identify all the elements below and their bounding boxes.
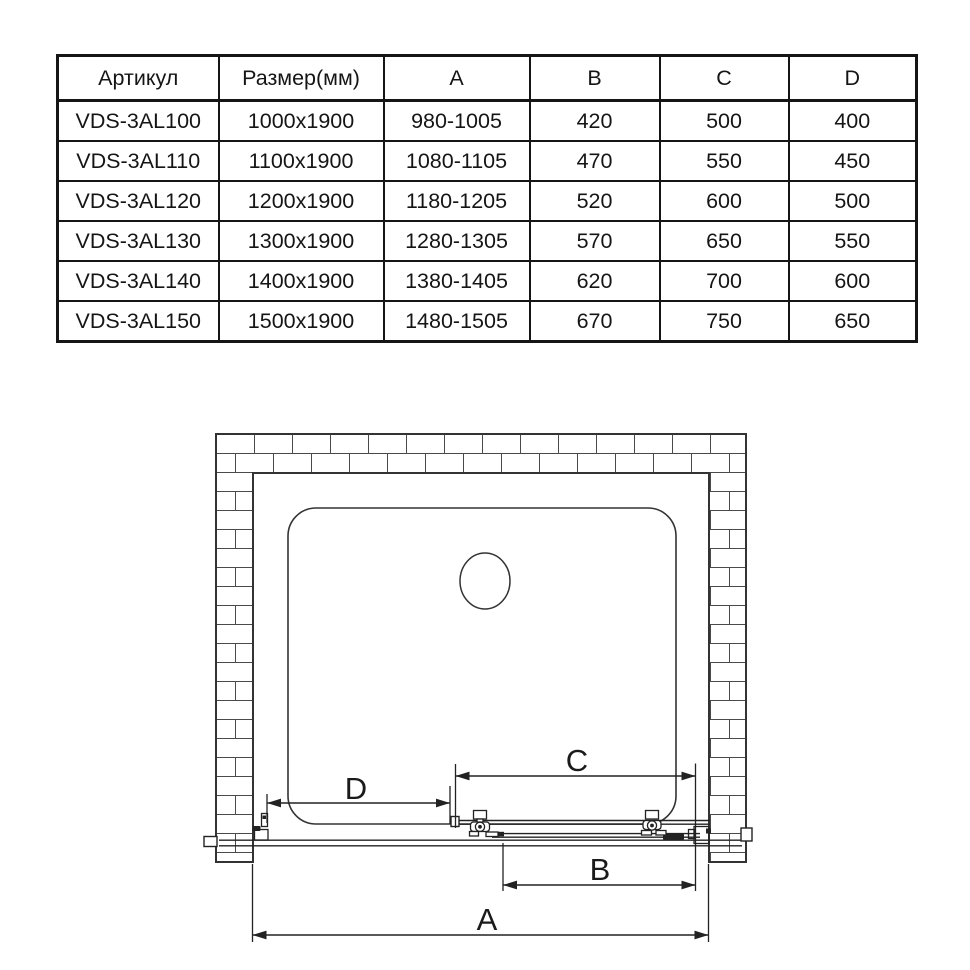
page: Артикул Размер(мм) A B C D VDS-3AL100 10… xyxy=(0,0,970,970)
dimension-b: B xyxy=(503,843,696,891)
drain-circle xyxy=(460,553,510,609)
wall-profile-left xyxy=(253,814,269,841)
track-end-cap-left xyxy=(204,837,217,847)
installation-diagram: D C B A xyxy=(0,0,970,970)
dimension-label-b: B xyxy=(590,852,611,887)
dimension-label-c: C xyxy=(566,743,588,778)
dimension-a: A xyxy=(253,864,709,942)
wall-profile-right xyxy=(689,827,712,844)
sliding-door xyxy=(492,832,700,840)
dimension-label-d: D xyxy=(345,771,367,806)
dimension-label-a: A xyxy=(477,902,498,937)
track-end-cap-right xyxy=(741,828,752,841)
